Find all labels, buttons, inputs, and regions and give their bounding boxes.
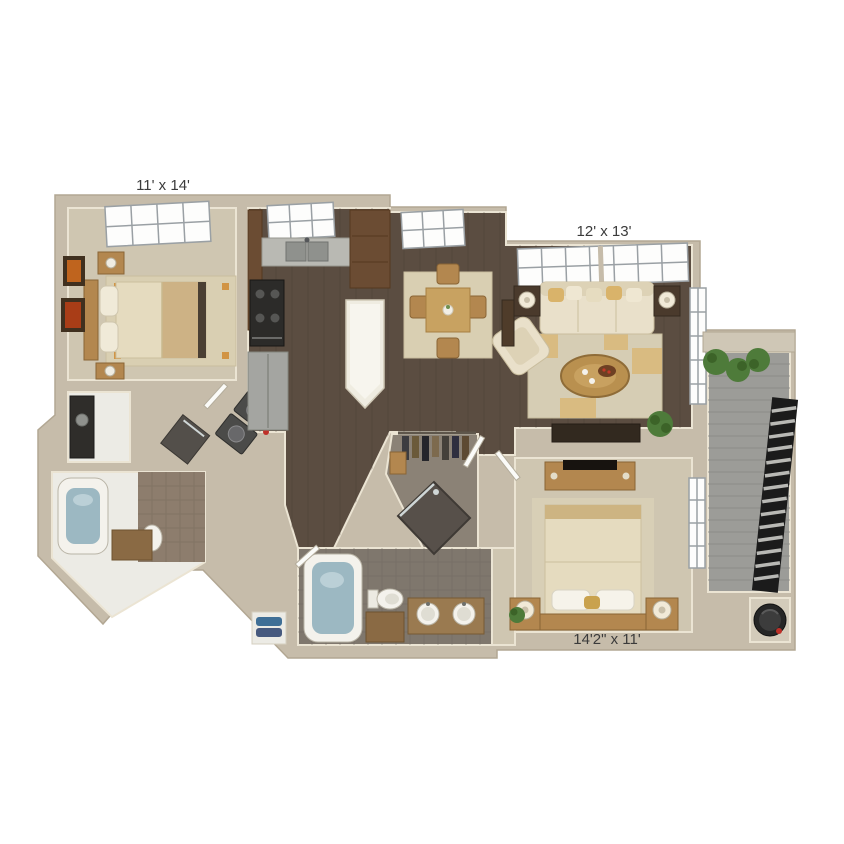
balcony-planter-wall <box>703 332 795 352</box>
pillow <box>100 286 118 316</box>
pillow <box>606 286 622 300</box>
floor-plan-svg: 11' x 14' 12' x 13' 14'2" x 11' <box>0 0 844 844</box>
headboard <box>84 280 98 360</box>
coffee-table <box>561 355 629 397</box>
sink-basin <box>286 242 306 261</box>
tv-console <box>552 424 640 442</box>
floor-plan-image: 11' x 14' 12' x 13' 14'2" x 11' <box>0 0 844 844</box>
bath-cabinet <box>366 612 404 642</box>
plant <box>647 411 673 437</box>
pillow <box>548 288 564 302</box>
pillow <box>596 590 634 610</box>
double-vanity <box>408 598 484 634</box>
living-top-windows <box>517 243 688 287</box>
master-tub <box>304 554 362 642</box>
pillow <box>100 322 118 352</box>
towels <box>256 617 282 626</box>
dining-chair <box>410 296 428 318</box>
pillow <box>586 288 602 302</box>
master-toilet <box>368 589 403 609</box>
console-table <box>502 300 514 346</box>
lamp <box>106 258 116 268</box>
closet-bench <box>390 452 406 474</box>
pantry-cabinet <box>350 210 390 288</box>
tv <box>563 460 617 470</box>
kitchen-island <box>346 300 384 408</box>
headboard <box>538 614 648 630</box>
bath2-cabinet <box>112 530 152 560</box>
label-bedroom1-dimensions: 14'2" x 11' <box>573 631 641 648</box>
dining-area <box>404 264 492 358</box>
bedroom2-window <box>105 201 211 246</box>
dining-chair <box>437 338 459 358</box>
faucet <box>305 238 310 243</box>
storage-closet <box>754 604 786 636</box>
bedroom1-bed <box>538 505 648 630</box>
label-living-room-dimensions: 12' x 13' <box>577 223 632 240</box>
sink-basin <box>308 242 328 261</box>
dresser <box>545 460 635 490</box>
plant <box>509 607 525 623</box>
sofa <box>540 282 654 334</box>
accent-pillow <box>584 596 600 609</box>
lamp <box>105 366 115 376</box>
refrigerator <box>248 352 288 430</box>
pillow <box>566 286 582 300</box>
bath2-vanity <box>70 396 94 458</box>
pillow <box>626 288 642 302</box>
dining-chair <box>468 296 486 318</box>
linen-shelf <box>252 612 286 644</box>
dining-window <box>401 209 465 248</box>
bath2-sink <box>76 414 88 426</box>
bedroom1-window <box>689 478 705 568</box>
range <box>250 280 284 346</box>
bath2-tub <box>58 478 108 554</box>
kitchen-window <box>267 202 335 239</box>
shower-head <box>433 489 439 495</box>
label-bedroom2-dimensions: 11' x 14' <box>136 177 190 194</box>
dining-chair <box>437 264 459 284</box>
